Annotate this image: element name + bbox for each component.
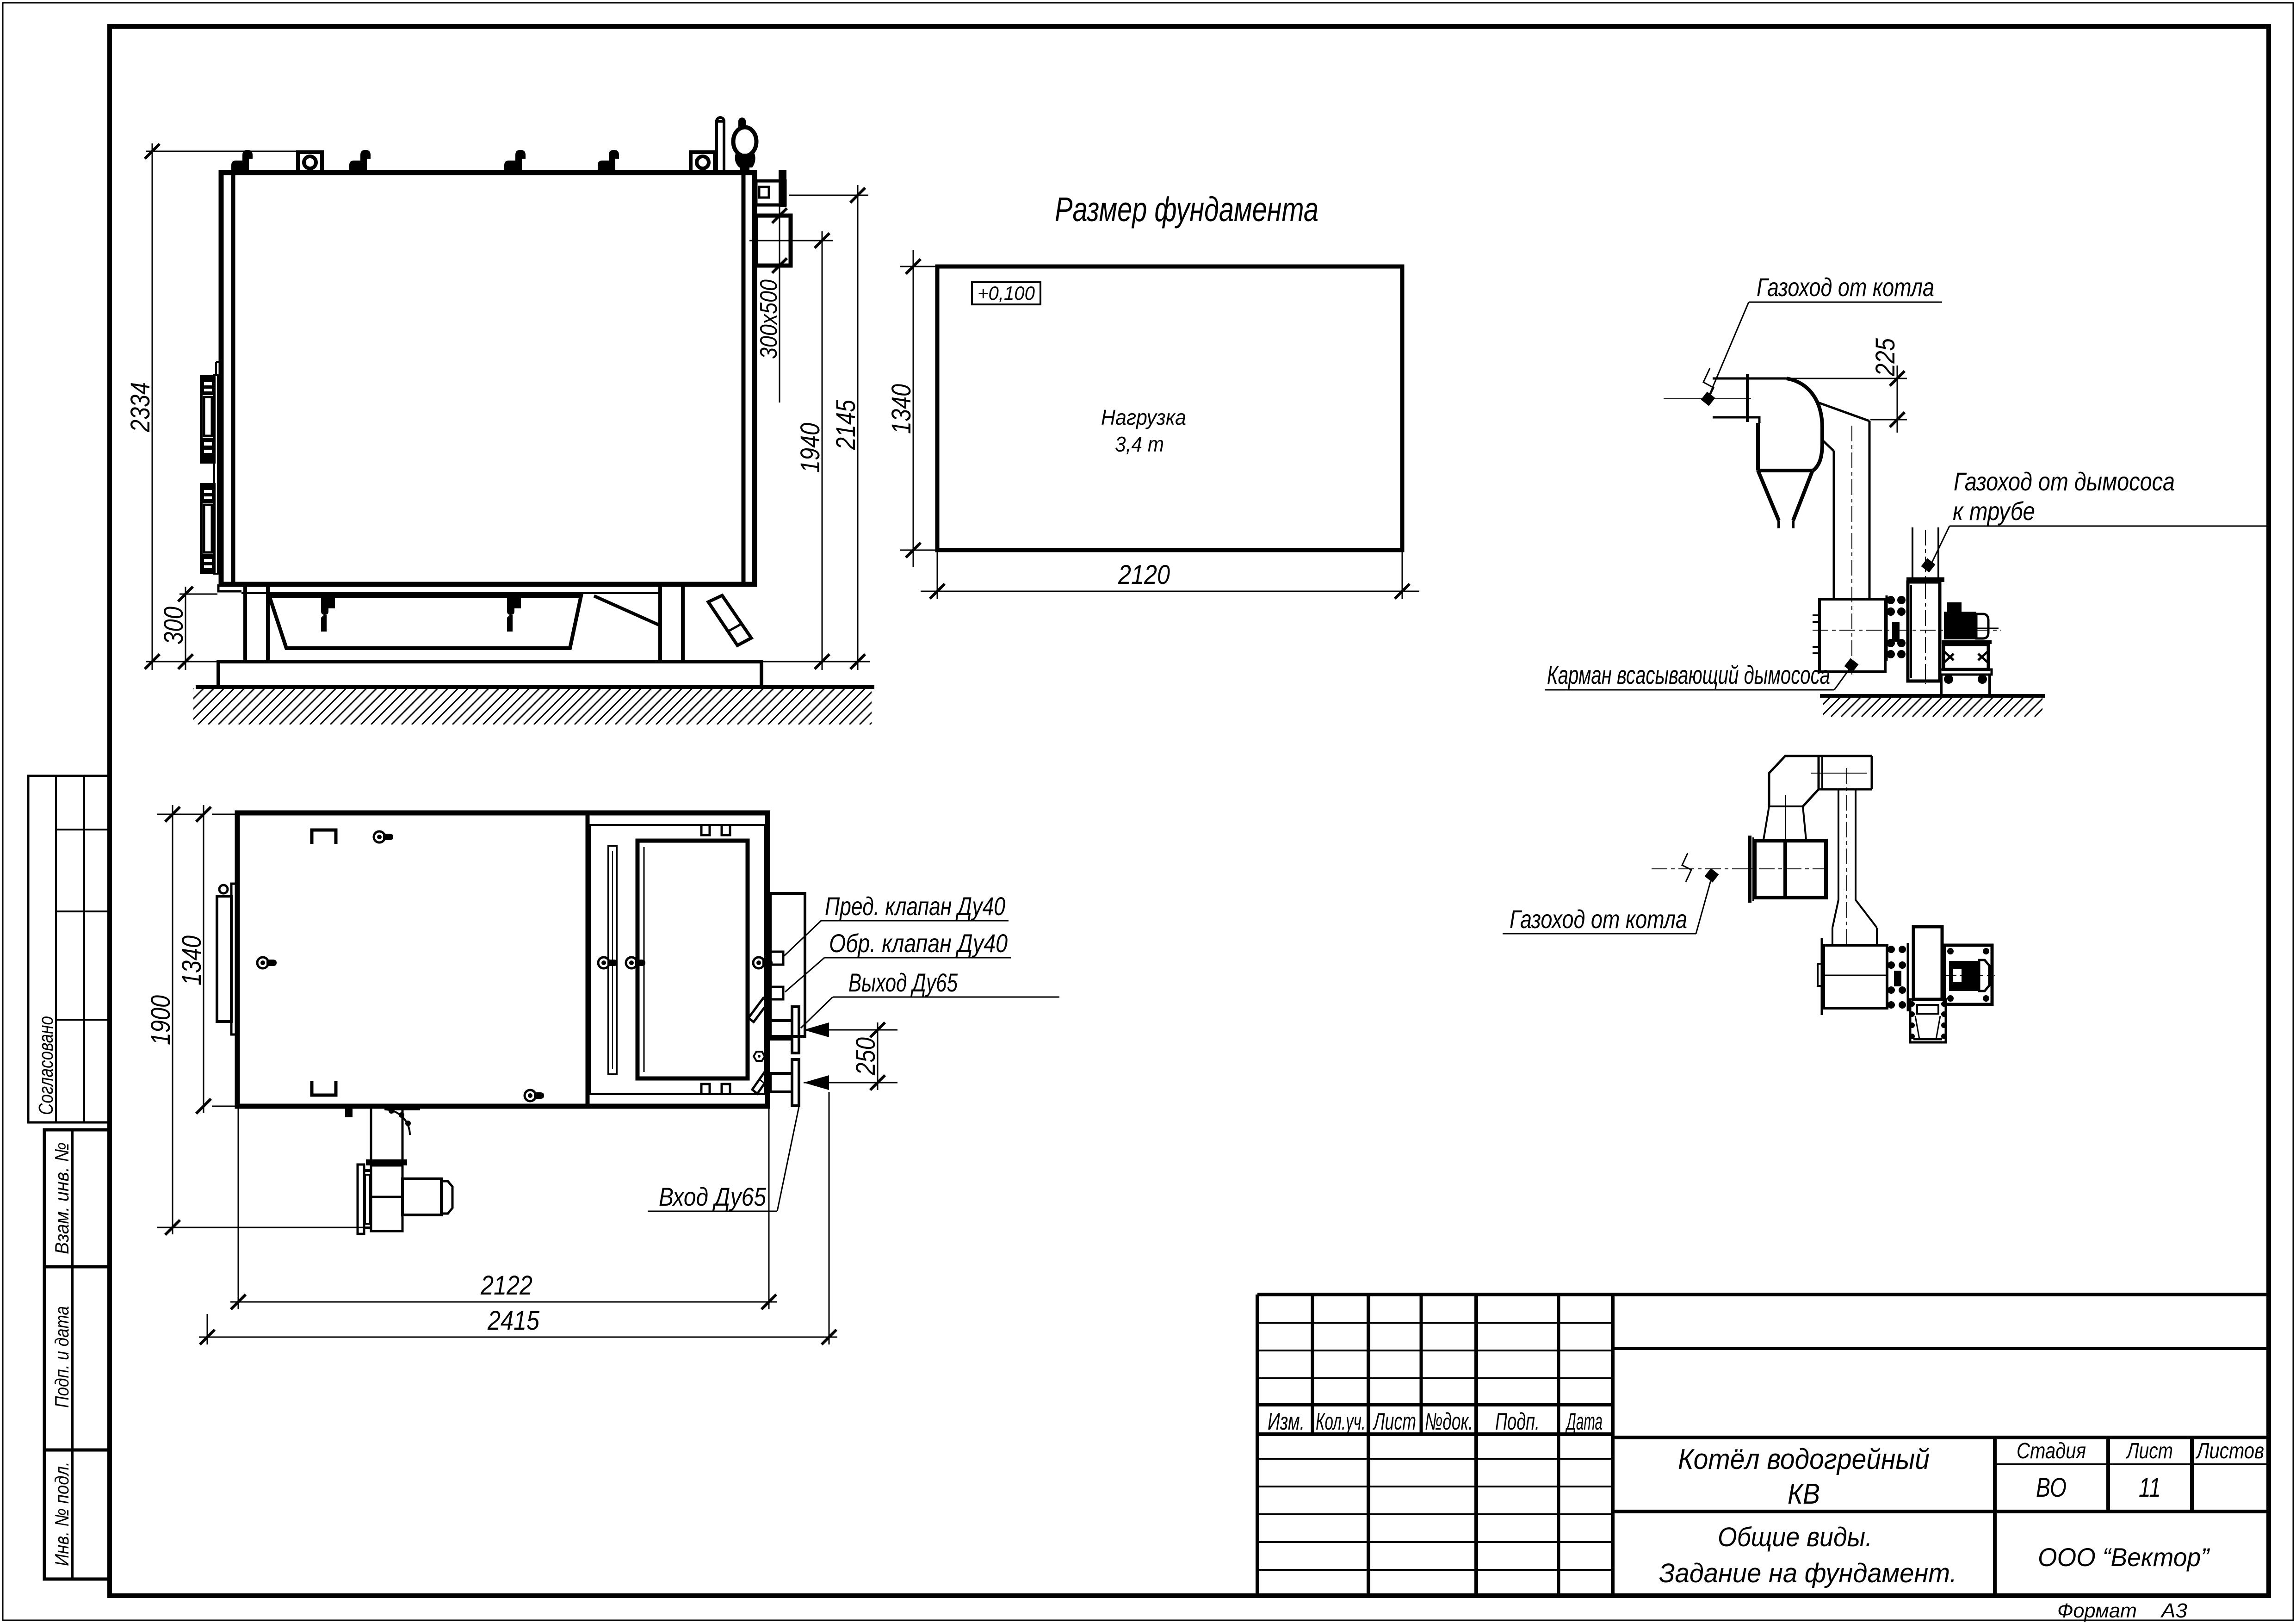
svg-text:Котёл водогрейный: Котёл водогрейный [1678, 1443, 1930, 1475]
svg-text:2120: 2120 [1118, 560, 1170, 590]
svg-text:Общие виды.: Общие виды. [1718, 1522, 1872, 1552]
svg-text:11: 11 [2139, 1473, 2161, 1503]
svg-text:Дата: Дата [1565, 1408, 1603, 1435]
svg-text:1340: 1340 [886, 384, 916, 434]
svg-text:2415: 2415 [487, 1306, 540, 1336]
svg-text:Подп.: Подп. [1495, 1408, 1540, 1435]
svg-text:Лист: Лист [2126, 1439, 2173, 1463]
svg-text:Нагрузка: Нагрузка [1101, 405, 1186, 429]
svg-text:Вход Ду65: Вход Ду65 [659, 1182, 767, 1211]
svg-text:Стадия: Стадия [2017, 1439, 2086, 1463]
svg-text:300: 300 [159, 607, 189, 644]
svg-text:Согласовано: Согласовано [35, 1016, 57, 1115]
svg-text:3,4 т: 3,4 т [1115, 432, 1164, 456]
svg-text:Обр. клапан Ду40: Обр. клапан Ду40 [829, 929, 1008, 958]
svg-text:ООО “Вектор”: ООО “Вектор” [2038, 1542, 2210, 1572]
svg-text:КВ: КВ [1788, 1478, 1820, 1510]
svg-text:Инв. № подл.: Инв. № подл. [51, 1462, 73, 1566]
svg-text:ВО: ВО [2036, 1473, 2067, 1503]
svg-text:2122: 2122 [480, 1270, 532, 1301]
svg-text:Взам. инв. №: Взам. инв. № [51, 1142, 73, 1254]
svg-text:1900: 1900 [146, 995, 176, 1045]
svg-text:к трубе: к трубе [1953, 496, 2035, 526]
svg-text:Газоход от котла: Газоход от котла [1510, 904, 1687, 934]
svg-text:Выход Ду65: Выход Ду65 [848, 968, 958, 997]
svg-text:Задание на фундамент.: Задание на фундамент. [1659, 1558, 1957, 1588]
svg-text:2334: 2334 [125, 382, 155, 433]
svg-text:1940: 1940 [795, 423, 825, 473]
svg-text:2145: 2145 [831, 399, 861, 450]
svg-text:Газоход от котла: Газоход от котла [1757, 273, 1934, 302]
svg-text:Подп. и дата: Подп. и дата [51, 1306, 73, 1408]
svg-text:Изм.: Изм. [1268, 1408, 1305, 1435]
svg-text:+0,100: +0,100 [978, 282, 1035, 304]
svg-text:225: 225 [1870, 338, 1900, 376]
svg-text:Кол.уч.: Кол.уч. [1316, 1408, 1366, 1435]
svg-text:Размер фундамента: Размер фундамента [1055, 190, 1318, 229]
svg-text:А3: А3 [2160, 1599, 2188, 1622]
svg-text:1340: 1340 [177, 935, 207, 985]
svg-text:№док.: №док. [1425, 1408, 1473, 1435]
svg-text:Пред. клапан Ду40: Пред. клапан Ду40 [825, 892, 1005, 921]
svg-text:300х500: 300х500 [755, 279, 782, 359]
svg-text:250: 250 [851, 1037, 881, 1076]
svg-text:Лист: Лист [1373, 1408, 1416, 1435]
svg-text:Формат: Формат [2057, 1599, 2137, 1622]
svg-text:Газоход от дымососа: Газоход от дымососа [1954, 467, 2175, 496]
svg-text:Листов: Листов [2195, 1439, 2264, 1463]
svg-text:Карман всасывающий дымососа: Карман всасывающий дымососа [1547, 660, 1830, 689]
